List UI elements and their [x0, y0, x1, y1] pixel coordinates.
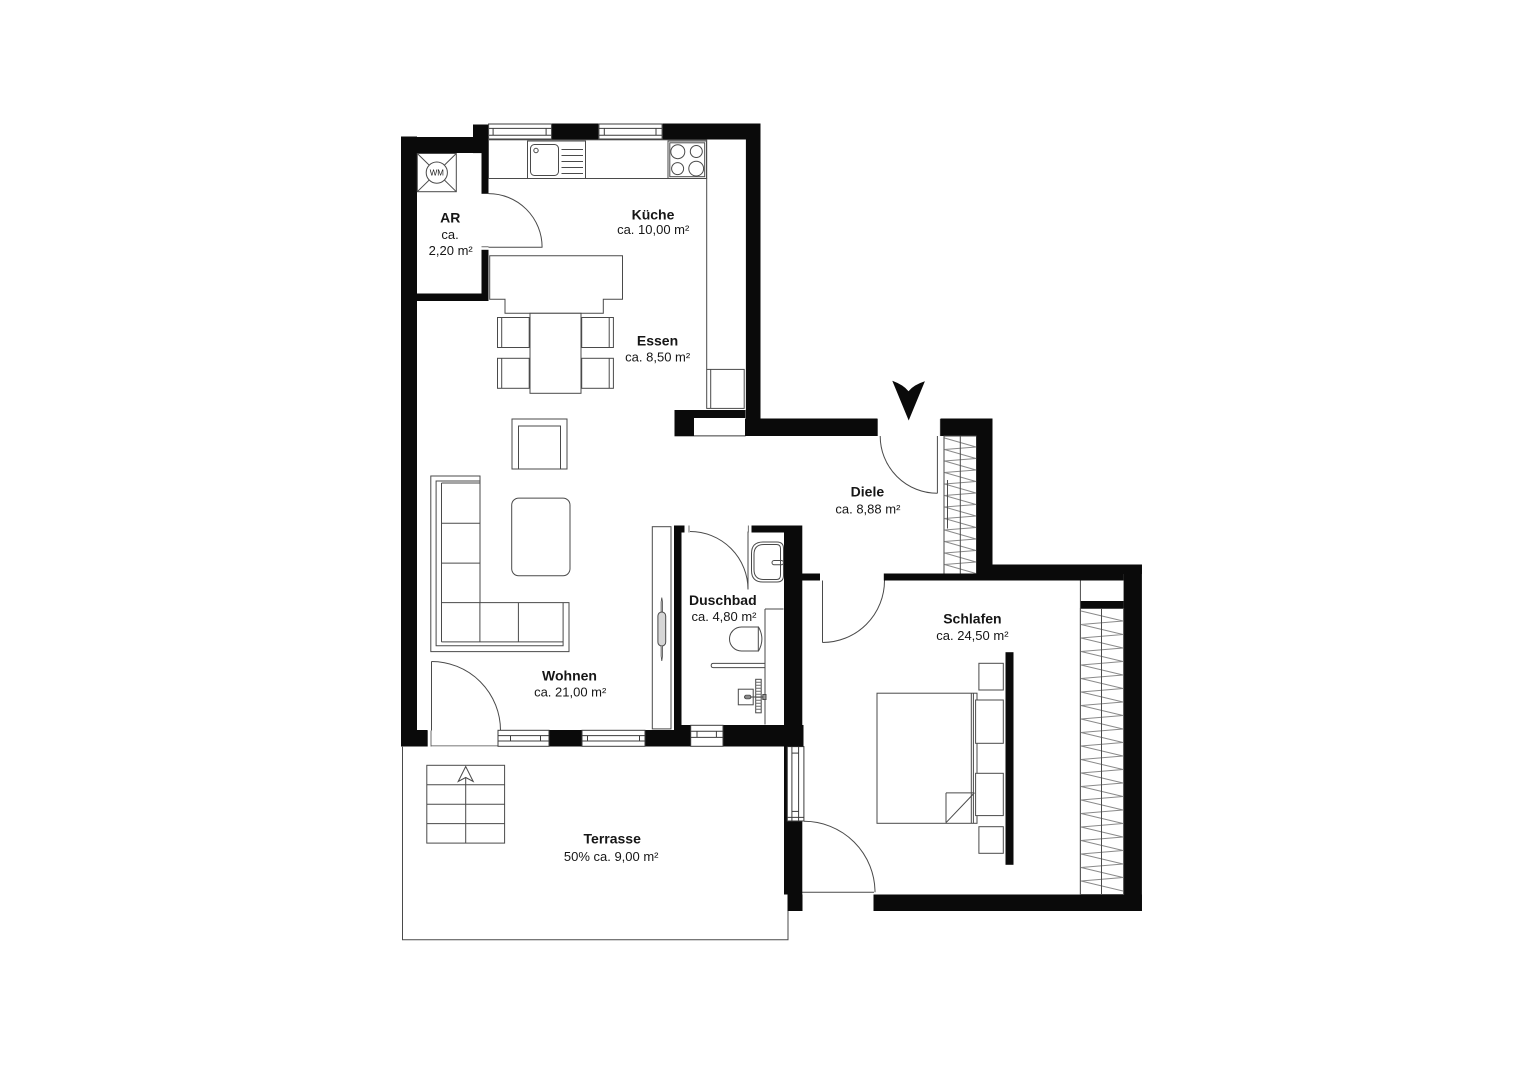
svg-text:Schlafen: Schlafen [943, 611, 1001, 627]
svg-text:Diele: Diele [851, 484, 885, 500]
svg-text:ca. 24,50 m²: ca. 24,50 m² [936, 628, 1009, 643]
svg-text:WM: WM [430, 169, 445, 178]
svg-text:Terrasse: Terrasse [584, 831, 642, 847]
svg-text:ca.: ca. [441, 227, 458, 242]
svg-text:Küche: Küche [632, 207, 675, 223]
svg-text:Essen: Essen [637, 333, 678, 349]
svg-text:ca. 4,80 m²: ca. 4,80 m² [691, 609, 757, 624]
svg-text:ca. 21,00 m²: ca. 21,00 m² [534, 685, 607, 700]
svg-text:50% ca. 9,00 m²: 50% ca. 9,00 m² [564, 849, 659, 864]
svg-text:Wohnen: Wohnen [542, 668, 597, 684]
svg-text:AR: AR [440, 209, 460, 225]
svg-text:ca. 10,00 m²: ca. 10,00 m² [617, 222, 690, 237]
svg-text:ca. 8,50 m²: ca. 8,50 m² [625, 349, 691, 364]
svg-text:Duschbad: Duschbad [689, 592, 757, 608]
svg-text:ca. 8,88 m²: ca. 8,88 m² [835, 501, 901, 516]
svg-text:2,20 m²: 2,20 m² [429, 243, 474, 258]
